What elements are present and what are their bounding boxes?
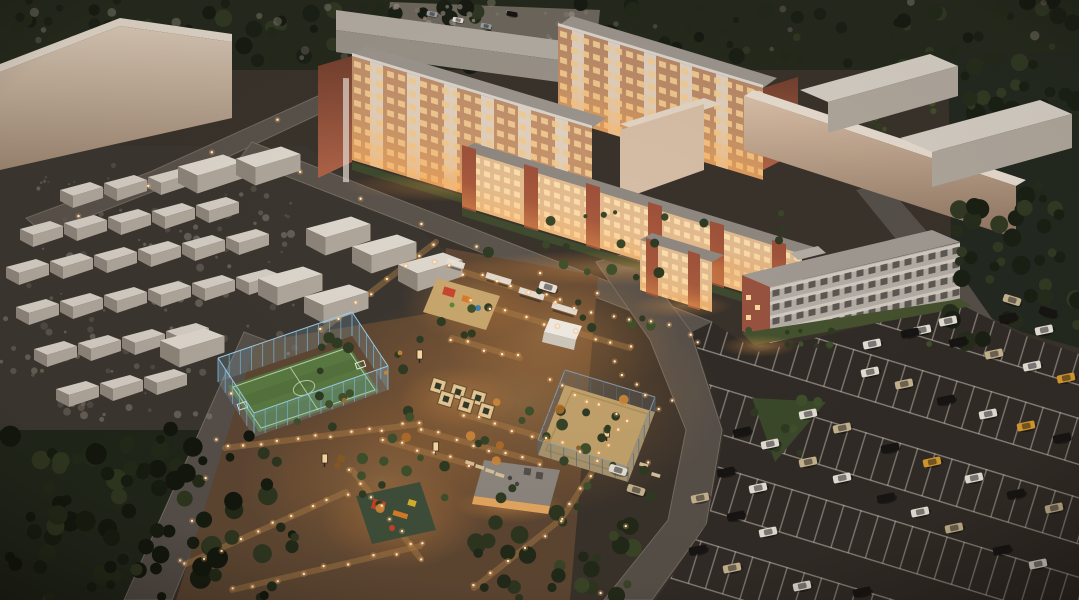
- architectural-rendering: [0, 0, 1079, 600]
- render-viewport: [0, 0, 1079, 600]
- vignette-overlay: [0, 0, 1079, 600]
